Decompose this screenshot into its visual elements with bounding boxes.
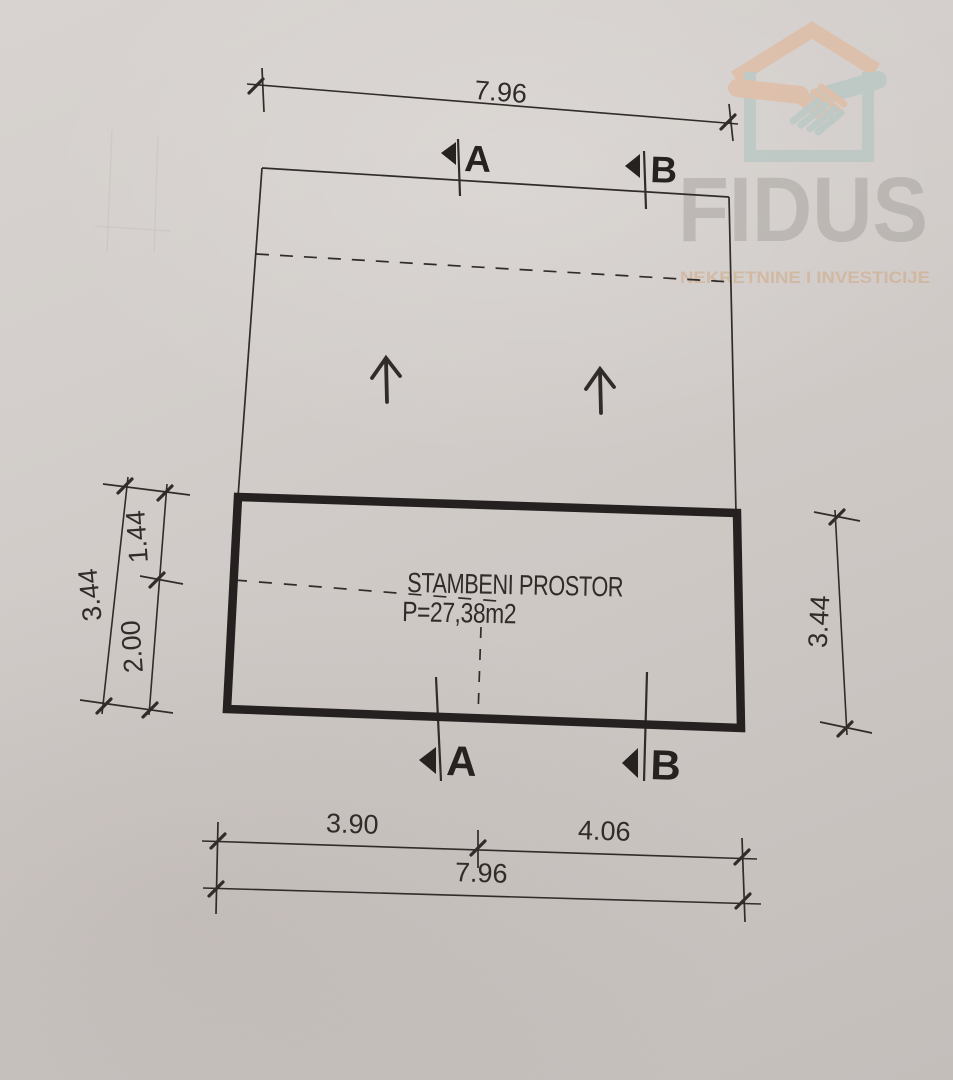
- section-marker-b-bottom: B: [622, 741, 682, 789]
- floor-plan-photo: FIDUS NEKRETNINE I INVESTICIJE 7.96 A B: [0, 0, 953, 1080]
- brand-text: FIDUS: [678, 159, 928, 261]
- room-area-label: P=27,38m2: [402, 596, 517, 629]
- dim-left-upper: 1.44: [120, 509, 154, 564]
- section-b-arrow-icon: [625, 154, 640, 178]
- dim-bottom-right: 4.06: [578, 815, 631, 847]
- upper-dashed-line: [256, 254, 732, 282]
- section-a-bottom-label: A: [446, 737, 478, 785]
- section-marker-a-bottom: A: [419, 737, 478, 785]
- section-b-arrow-icon: [622, 748, 638, 778]
- section-marker-b-top: B: [625, 149, 678, 209]
- section-a-top-label: A: [464, 138, 492, 180]
- house-roof-icon: [735, 30, 876, 78]
- room-center-dashed-v: [478, 627, 481, 716]
- up-arrow-icon: [586, 369, 614, 413]
- paper-bleed-through: [95, 130, 170, 252]
- dim-top-total: 7.96: [473, 75, 528, 109]
- dim-right-total: 3.44: [803, 594, 836, 648]
- section-a-arrow-icon: [419, 747, 436, 774]
- section-marker-a-top: A: [441, 138, 492, 196]
- section-a-arrow-icon: [441, 142, 456, 165]
- upper-room-outline: [238, 168, 736, 513]
- dim-bottom-total: 7.96: [455, 857, 508, 889]
- handshake-icon: [737, 80, 878, 132]
- dim-left-lower: 2.00: [115, 619, 149, 674]
- dim-bottom-left: 3.90: [326, 808, 379, 840]
- section-b-top-label: B: [650, 149, 678, 191]
- brand-tagline: NEKRETNINE I INVESTICIJE: [680, 269, 930, 287]
- section-b-bottom-label: B: [650, 741, 682, 789]
- dim-left-total: 3.44: [72, 567, 107, 622]
- floor-plan-drawing: FIDUS NEKRETNINE I INVESTICIJE 7.96 A B: [0, 0, 953, 1080]
- fidus-logo-watermark: FIDUS NEKRETNINE I INVESTICIJE: [678, 30, 930, 287]
- up-arrow-icon: [372, 358, 400, 402]
